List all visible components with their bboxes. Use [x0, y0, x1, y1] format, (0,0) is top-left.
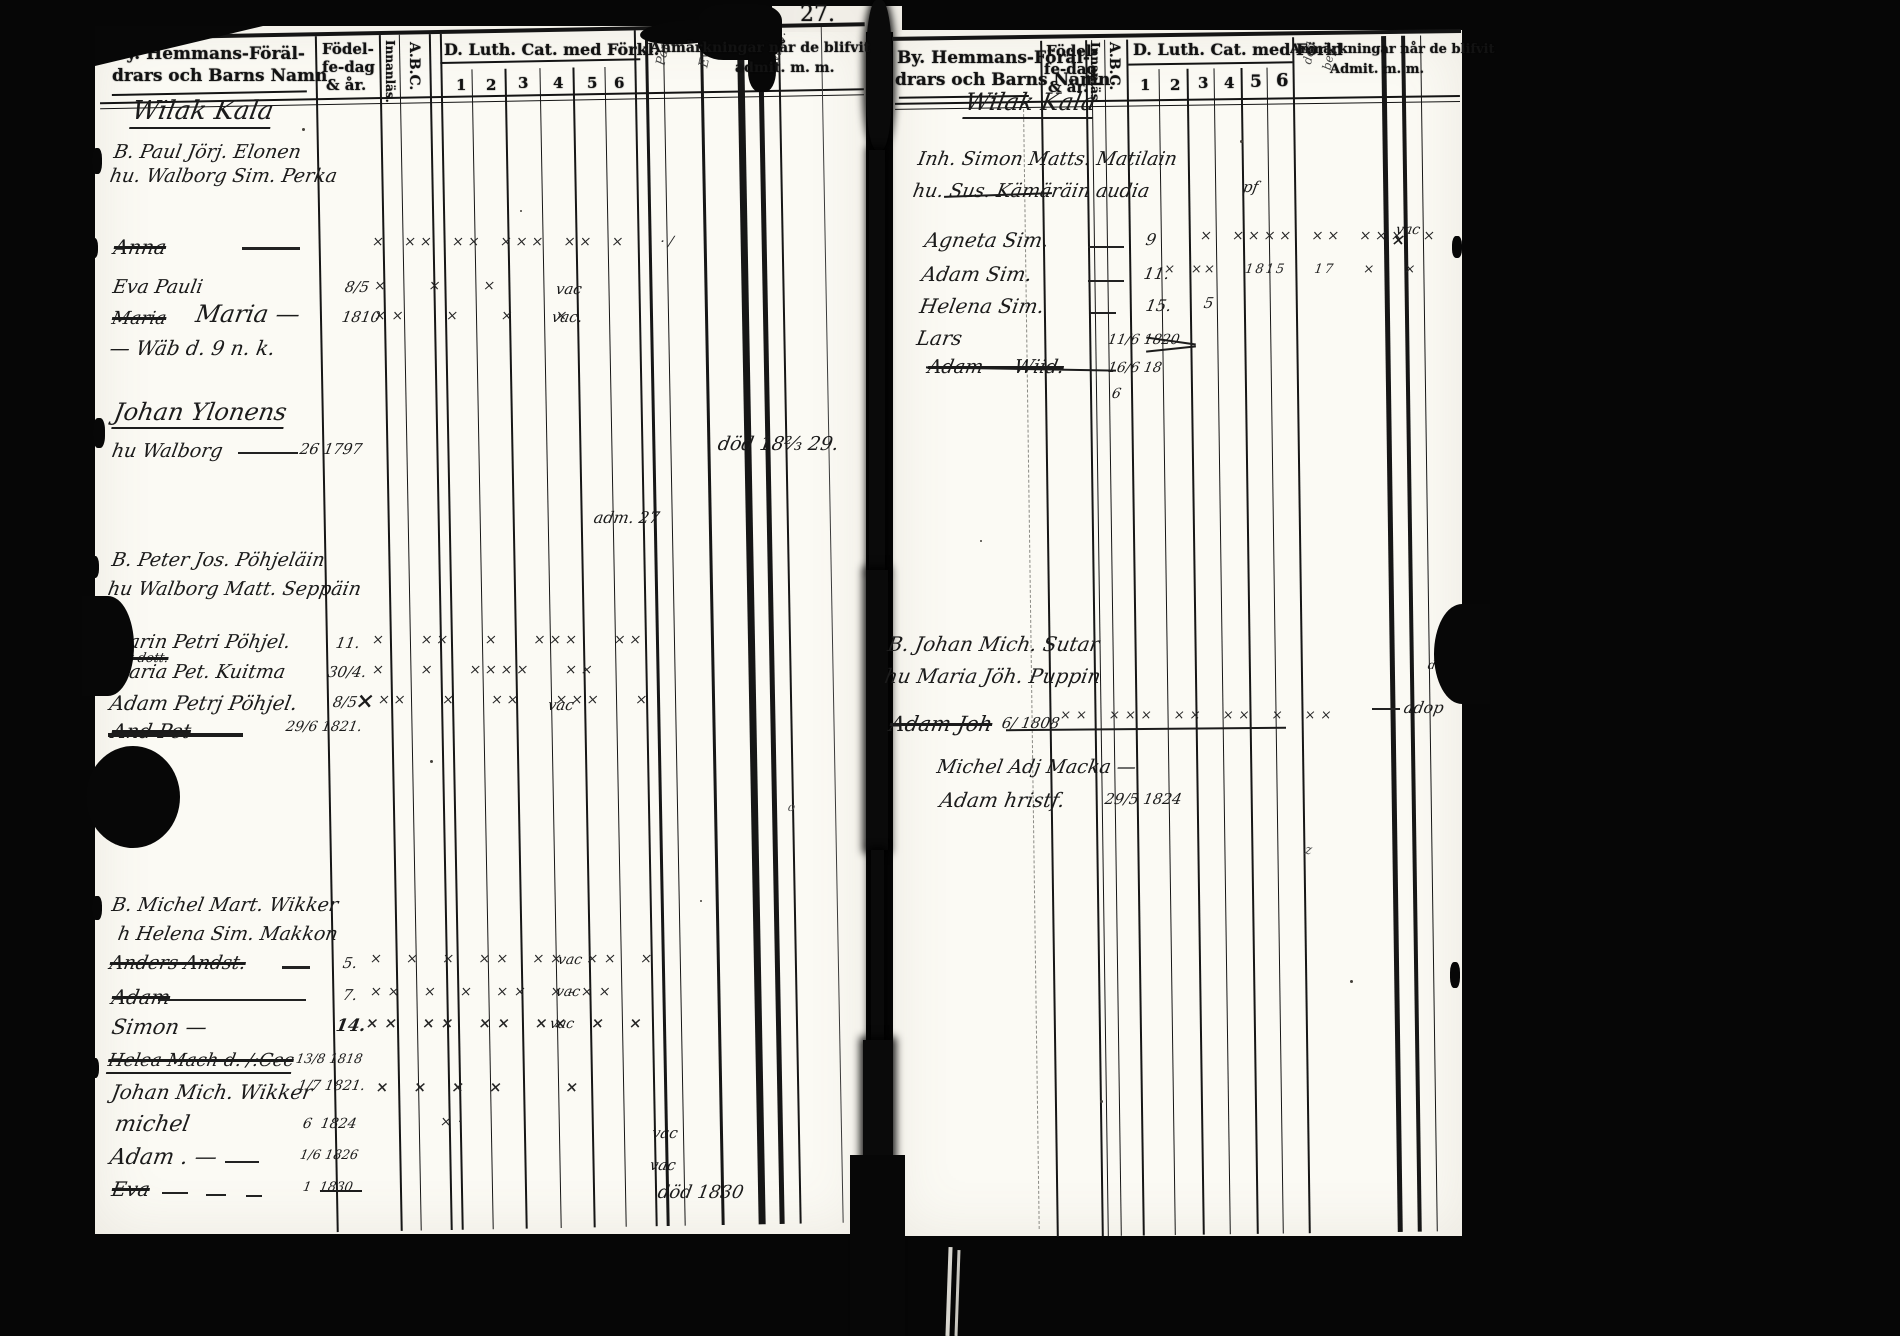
child-name-struck: Maria — [110, 308, 168, 329]
right-cat-col-2: 2 — [1170, 76, 1180, 94]
bottom-center-blob — [850, 1155, 905, 1336]
remark-vaccinated: vac — [557, 952, 584, 968]
row-leader — [1090, 312, 1116, 314]
left-col-birth-line2: fe-dag — [322, 58, 375, 76]
household-head: Michel Adj Macka — — [935, 756, 1138, 778]
left-edge-notch — [82, 596, 134, 696]
child-name-struck: Helea Mach d. /:Cec — [106, 1050, 296, 1074]
remark-vaccinated: vac — [546, 696, 575, 714]
right-edge-notch — [1434, 604, 1490, 704]
row-leader — [158, 999, 306, 1001]
child-name: — Wäb d. 9 n. k. — [108, 336, 277, 360]
household-wife: hu Walborg — [110, 440, 225, 462]
child-name: Simon — — [110, 1015, 209, 1039]
catechism-marks: ×× × ×× ××× × — [377, 692, 652, 708]
catechism-marks: × × ×××× ×× — [371, 662, 598, 678]
child-name: Adam hristf. — [938, 788, 1067, 812]
household-wife: hu. Sus. Kämäräin audia — [911, 180, 1151, 202]
remark-vaccinated: vac — [554, 280, 583, 298]
catechism-marks: ×× ××× ×× ×× × ×× — [1059, 708, 1337, 723]
left-col-birth-line3: & år. — [326, 76, 366, 94]
speckle — [980, 540, 982, 542]
row-leader — [206, 1194, 226, 1196]
child-name: Eva Pauli — [111, 276, 205, 298]
child-name: Johan Mich. Wikker — [110, 1080, 314, 1104]
birth-date: 29/5 1824 — [1103, 790, 1183, 808]
child-name: Lars — [915, 326, 964, 350]
edge-tick — [90, 238, 98, 258]
scanned-parish-register: By. Hemmans-Föräl- drars och Barns Namn … — [0, 0, 1900, 1336]
left-col-remarks-line2: admit. m. m. — [735, 60, 834, 76]
row-leader — [282, 966, 310, 969]
row-leader — [238, 452, 298, 454]
remark: pf — [1241, 178, 1259, 196]
left-col-birth-line1: Födel- — [322, 40, 374, 58]
edge-tick — [90, 556, 99, 578]
row-leader — [1372, 708, 1400, 710]
remark-vaccinated: vac — [650, 1124, 679, 1142]
row-leader — [225, 1161, 259, 1163]
remark-vaccinated: vac — [1395, 222, 1422, 238]
row-leader — [1088, 280, 1124, 282]
right-cat-col-3: 3 — [1198, 74, 1208, 92]
birth-date: 1/7 1821. — [297, 1078, 367, 1094]
birth-date: 11. — [334, 634, 361, 652]
birth-date: 14. — [334, 1016, 367, 1036]
speckle — [1240, 140, 1243, 143]
village-heading: Wilak Kala — [962, 88, 1098, 119]
child-name: Adam Sim. — [920, 262, 1034, 286]
left-col-abc: A.B.C. — [406, 42, 422, 90]
left-ink-blob — [86, 746, 180, 848]
catechism-marks: × ×× 1815 17 × × — [1163, 262, 1418, 277]
left-cat-col-6: 6 — [614, 74, 624, 92]
left-cat-col-4: 4 — [553, 74, 563, 92]
edge-tick — [91, 1058, 99, 1078]
household-wife: hu Walborg Matt. Seppäin — [106, 578, 363, 600]
left-cat-col-2: 2 — [486, 76, 496, 94]
edge-tick — [1452, 236, 1462, 258]
birth-date: 1/6 1826 — [299, 1148, 360, 1163]
remark-vaccinated: vac. — [550, 308, 584, 326]
household-head: Inh. Simon Matts. Matilain — [916, 148, 1179, 170]
right-cat-col-4: 4 — [1224, 74, 1234, 92]
household-head: Johan Ylonens — [111, 398, 289, 429]
speckle — [520, 210, 522, 212]
right-col-remarks-line1: Anmärkningar når de blifvit — [1290, 42, 1495, 57]
speckle — [302, 128, 305, 131]
birth-date: 8/5 — [343, 278, 370, 296]
left-cat-col-3: 3 — [518, 74, 528, 92]
remark-vaccinated: vac — [555, 984, 582, 1000]
birth-date: 29/6 1821. — [285, 719, 364, 735]
catechism-marks: × × × — [373, 278, 502, 294]
birth-date: 16/6 18 — [1107, 360, 1164, 376]
row-leader — [162, 1192, 188, 1194]
catechism-marks: × ×× ×× ××× ×× × ·/ — [371, 234, 679, 250]
remark-died: död 1830 — [656, 1182, 745, 1203]
catechism-marks: ×× × × × — [373, 308, 575, 324]
village-heading: Wilak Kala — [129, 96, 276, 129]
birth-date: 13/8 1818 — [295, 1052, 364, 1067]
right-cat-col-1: 1 — [1140, 76, 1150, 94]
child-name-struck: Anders Andst. — [108, 952, 248, 974]
child-name-struck: Eva — [110, 1177, 152, 1201]
catechism-marks: ×· — [439, 1114, 469, 1130]
right-col-abc: A.B.C. — [1106, 42, 1122, 90]
birth-date: 30/4. — [326, 663, 368, 681]
child-name: michel — [113, 1112, 192, 1137]
child-name: Agneta Sim. — [923, 228, 1051, 252]
left-col-innanlas: Innanläs. — [383, 40, 397, 103]
catechism-marks: × × × ×× ×× ×× × — [369, 951, 659, 967]
left-cat-col-5: 5 — [587, 74, 597, 92]
speckle — [1350, 980, 1353, 983]
left-col-name-line2: drars och Barns Namn — [112, 66, 327, 86]
row-leader — [242, 247, 300, 250]
left-col-catechism: D. Luth. Cat. med Förkl. — [444, 40, 659, 59]
edge-tick — [92, 148, 102, 174]
strike-line — [320, 1190, 362, 1192]
child-name-struck: Adam — [110, 985, 172, 1009]
remark-admitted: adm. 27 — [592, 508, 661, 527]
row-leader — [1088, 246, 1124, 248]
child-name: Maria — — [194, 300, 303, 328]
left-cat-col-1: 1 — [456, 76, 466, 94]
remark-vaccinated: vac — [648, 1156, 677, 1174]
household-wife: hu. Walborg Sim. Perka — [108, 165, 339, 187]
strike-line — [108, 733, 243, 737]
remark-vaccinated: vac — [549, 1016, 576, 1032]
child-name-struck: Adam Joh — [888, 712, 995, 736]
catechism-marks: × ×× × ××× ×× — [371, 632, 646, 648]
birth-date: 6 1824 — [302, 1116, 358, 1132]
child-name: Carin Petri Pöhjel. — [112, 631, 292, 653]
remark-adopted: adop — [1402, 698, 1445, 717]
household-wife: hu Maria Jöh. Puppin — [883, 664, 1103, 688]
household-wife: h Helena Sim. Makkon — [116, 923, 340, 945]
left-col-remarks-line1: Anmärkningar når de blifvit — [650, 40, 870, 56]
right-cat-col-6: 6 — [1276, 70, 1289, 91]
birth-date: 15. — [1144, 296, 1173, 315]
right-cat-col-5: 5 — [1250, 72, 1262, 92]
edge-tick — [92, 896, 102, 920]
birth-date: 1 1830 — [302, 1180, 354, 1195]
child-name-struck: And Pet — [110, 719, 193, 743]
edge-tick — [93, 418, 105, 448]
speckle — [430, 760, 433, 763]
remark-died: död 18⅔ 29. — [716, 433, 841, 455]
household-head: B. Michel Mart. Wikker — [110, 894, 340, 916]
child-name: Adam . — — [108, 1145, 219, 1170]
child-name: Adam Petrj Pöhjel. — [108, 691, 300, 715]
child-name: Helena Sim. — [918, 294, 1046, 318]
catechism-marks: ×× ×× ×× ×× × × — [365, 1014, 649, 1032]
household-head: B. Johan Mich. Sutar — [886, 632, 1102, 656]
right-col-remarks-line2: Admit. m. m. — [1330, 62, 1424, 77]
speckle — [700, 900, 702, 902]
child-name: Maria Pet. Kuitma — [108, 661, 287, 683]
speckle — [1100, 1100, 1103, 1103]
page-number: 27. — [800, 2, 835, 27]
birth-date: 26 1797 — [298, 440, 363, 458]
household-head: B. Paul Jörj. Elonen — [112, 141, 303, 163]
household-head: B. Peter Jos. Pöhjeläin — [110, 549, 327, 571]
row-leader — [246, 1195, 262, 1197]
catechism-marks: × × × × × — [375, 1078, 586, 1096]
child-name: Anna — [112, 235, 168, 259]
edge-tick — [1450, 962, 1460, 988]
